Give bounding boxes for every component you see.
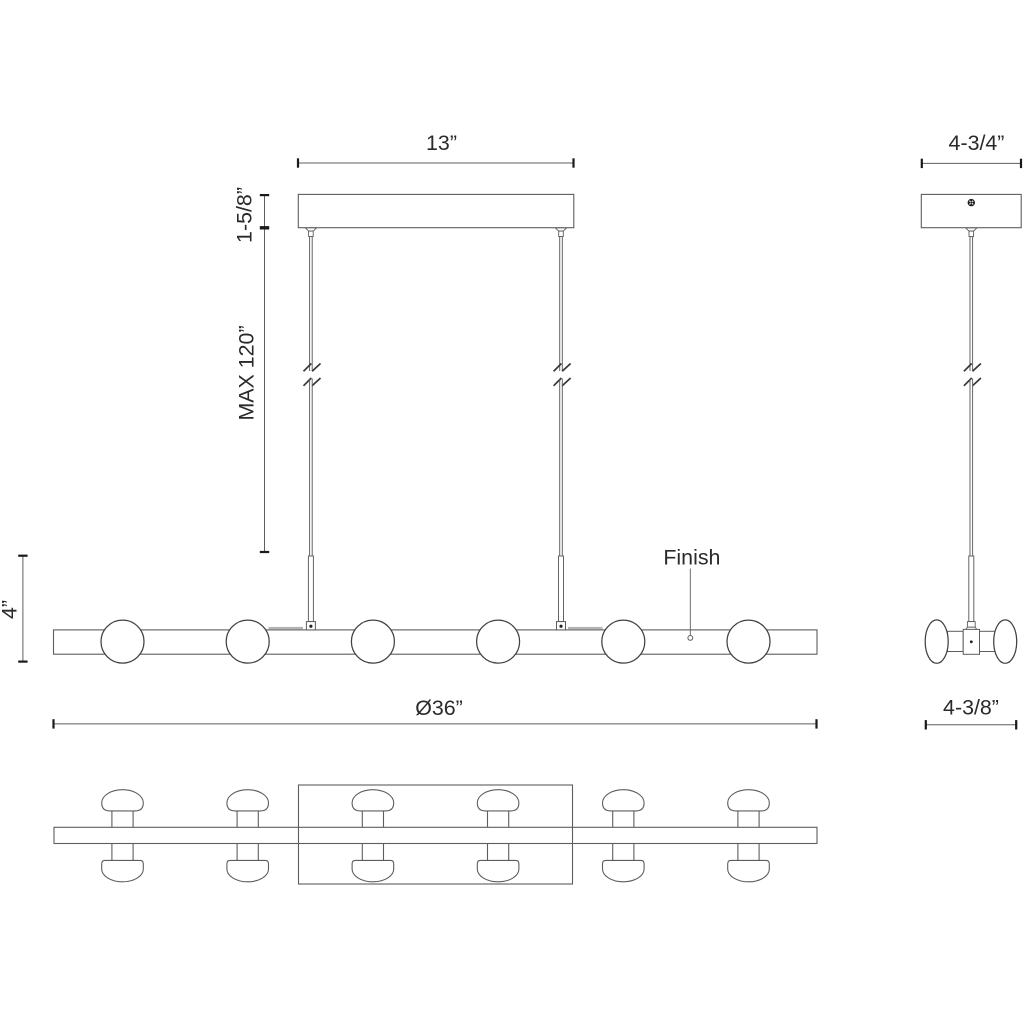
svg-text:4-3/4”: 4-3/4” [949, 131, 1005, 155]
svg-text:4-3/8”: 4-3/8” [943, 696, 999, 720]
svg-text:1-5/8”: 1-5/8” [233, 187, 257, 243]
svg-text:Finish: Finish [663, 546, 720, 570]
svg-text:13”: 13” [426, 131, 457, 155]
svg-text:MAX 120”: MAX 120” [235, 325, 259, 420]
svg-text:4”: 4” [0, 600, 22, 619]
svg-text:Ø36”: Ø36” [415, 696, 463, 720]
